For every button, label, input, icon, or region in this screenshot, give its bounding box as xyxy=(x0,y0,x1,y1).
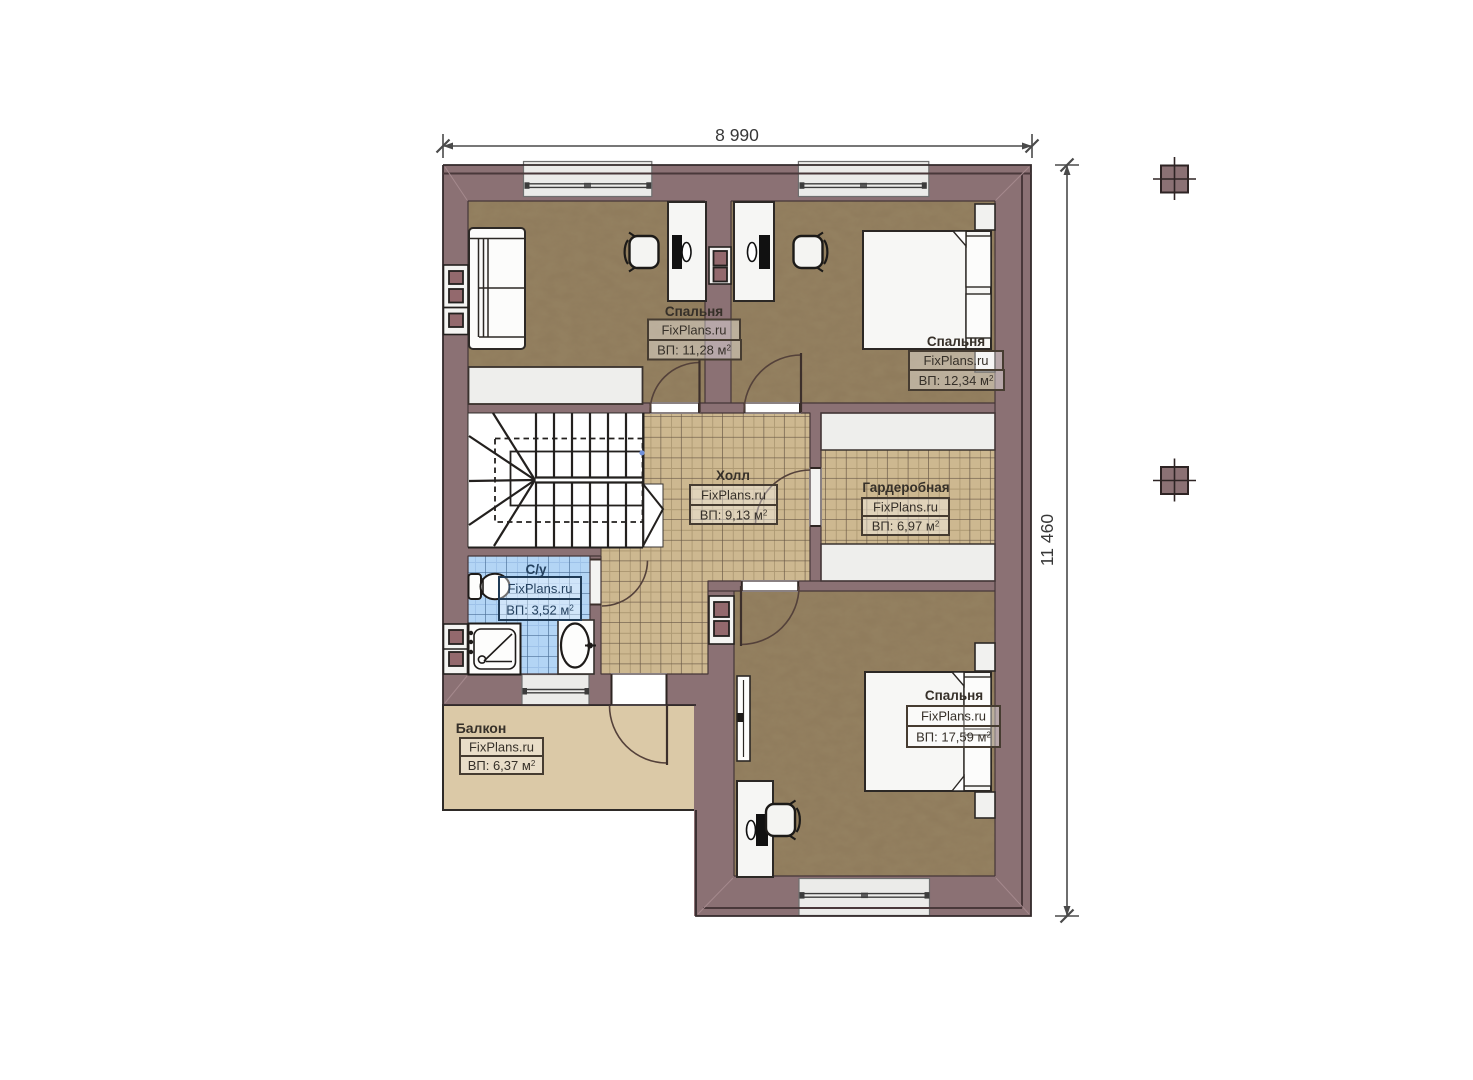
svg-text:Спальня: Спальня xyxy=(927,334,985,349)
svg-text:ВП: 6,97 м2: ВП: 6,97 м2 xyxy=(872,519,940,534)
svg-text:Гардеробная: Гардеробная xyxy=(862,480,949,495)
svg-text:ВП: 3,52 м2: ВП: 3,52 м2 xyxy=(506,603,574,618)
svg-text:FixPlans.ru: FixPlans.ru xyxy=(469,740,534,755)
svg-text:FixPlans.ru: FixPlans.ru xyxy=(873,500,938,515)
svg-text:11 460: 11 460 xyxy=(1037,514,1057,566)
svg-text:Спальня: Спальня xyxy=(665,304,723,319)
svg-text:FixPlans.ru: FixPlans.ru xyxy=(923,353,988,368)
svg-text:FixPlans.ru: FixPlans.ru xyxy=(921,709,986,724)
svg-text:ВП: 12,34 м2: ВП: 12,34 м2 xyxy=(919,373,994,388)
svg-text:ВП: 9,13 м2: ВП: 9,13 м2 xyxy=(700,508,768,523)
svg-text:Холл: Холл xyxy=(716,468,750,483)
svg-text:ВП: 11,28 м2: ВП: 11,28 м2 xyxy=(657,343,731,358)
svg-text:8 990: 8 990 xyxy=(715,125,759,145)
svg-text:ВП: 6,37 м2: ВП: 6,37 м2 xyxy=(468,758,536,773)
svg-text:Балкон: Балкон xyxy=(456,720,507,736)
svg-text:FixPlans.ru: FixPlans.ru xyxy=(701,488,766,503)
svg-text:ВП: 17,59 м2: ВП: 17,59 м2 xyxy=(916,730,991,745)
svg-text:Спальня: Спальня xyxy=(925,688,983,703)
svg-text:FixPlans.ru: FixPlans.ru xyxy=(507,581,572,596)
svg-text:FixPlans.ru: FixPlans.ru xyxy=(661,323,726,338)
svg-text:С/у: С/у xyxy=(525,562,547,577)
